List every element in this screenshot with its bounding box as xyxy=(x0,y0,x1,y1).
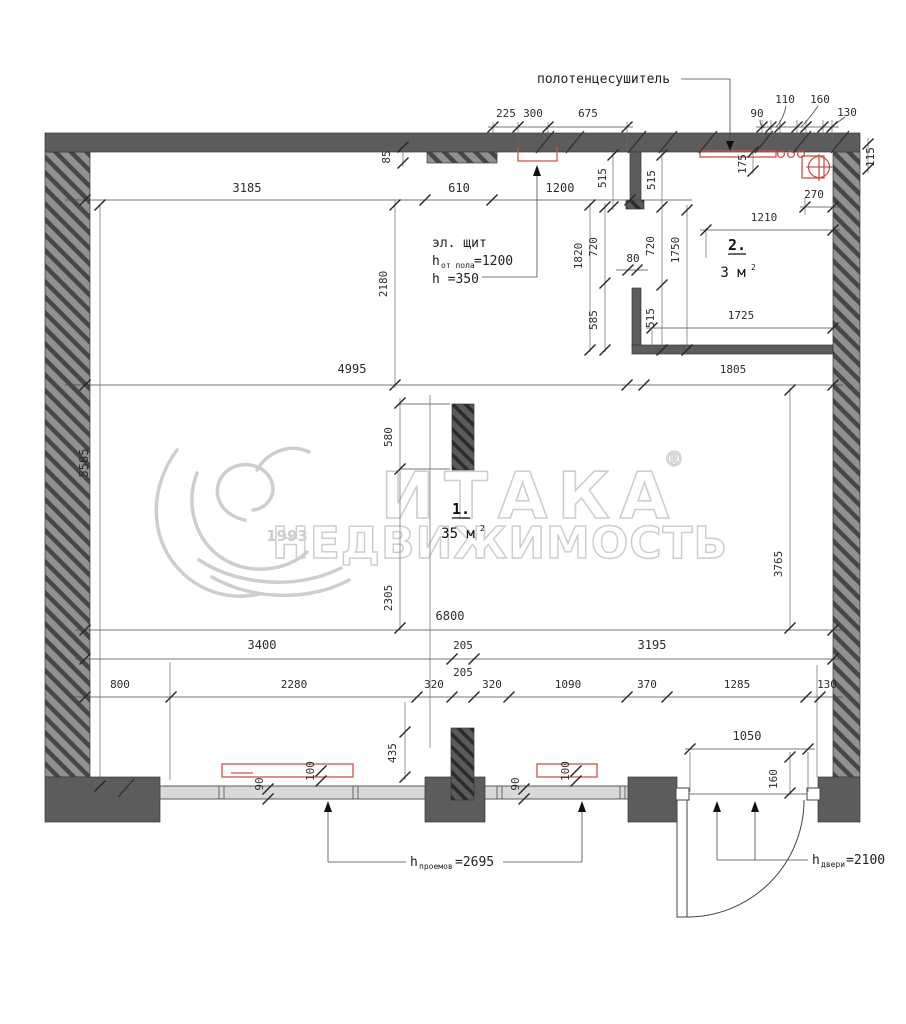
el-panel-title: эл. щит xyxy=(432,236,487,251)
dim-205b: 205 xyxy=(453,666,473,679)
door-jamb-right xyxy=(807,788,820,800)
dim-1285: 1285 xyxy=(724,678,751,691)
dim-3765: 3765 xyxy=(772,551,785,578)
dim-tr-130: 130 xyxy=(837,106,857,119)
column-upper xyxy=(452,404,474,470)
bottom-pier-door-left xyxy=(628,777,677,822)
dim-1090: 1090 xyxy=(555,678,582,691)
dim-720b: 720 xyxy=(644,236,657,256)
dim-175: 175 xyxy=(736,154,749,174)
dim-tr-110: 110 xyxy=(775,93,795,106)
room-1-number: 1. xyxy=(452,500,470,518)
dim-720a: 720 xyxy=(587,237,600,257)
door-height-value: =2100 xyxy=(846,853,885,868)
watermark-year: 1993 xyxy=(266,527,308,545)
towel-dryer-label: полотенцесушитель xyxy=(537,72,670,87)
dim-1725: 1725 xyxy=(728,309,755,322)
dim-160: 160 xyxy=(767,769,780,789)
dim-top-675: 675 xyxy=(578,107,598,120)
washbasin-icon xyxy=(802,154,833,181)
dim-rad2-100: 100 xyxy=(559,761,572,781)
window-2 xyxy=(485,786,628,799)
dim-1200: 1200 xyxy=(546,181,575,195)
door-arrow-2 xyxy=(751,801,759,812)
dim-585: 585 xyxy=(587,310,600,330)
dim-515c: 515 xyxy=(644,308,657,328)
dim-5585: 5585 xyxy=(77,449,91,478)
door-height-prefix: h xyxy=(812,853,820,868)
window-1-arrow xyxy=(324,801,332,812)
dim-2280: 2280 xyxy=(281,678,308,691)
columns xyxy=(451,404,474,800)
el-panel-h1-value: =1200 xyxy=(474,254,513,269)
dim-rad1-90: 90 xyxy=(253,777,266,790)
el-panel-h1-prefix: h xyxy=(432,254,440,269)
door-leaf xyxy=(677,800,687,917)
floor-plan-svg: ИТАКА ® НЕДВИЖИМОСТЬ 1993 xyxy=(0,0,906,1024)
dim-800: 800 xyxy=(110,678,130,691)
dim-435: 435 xyxy=(386,743,399,763)
dim-top-225: 225 xyxy=(496,107,516,120)
dim-1805: 1805 xyxy=(720,363,747,376)
top-wall xyxy=(45,133,860,152)
dim-6800: 6800 xyxy=(436,609,465,623)
door-height-sub: двери xyxy=(821,860,845,869)
right-wall xyxy=(833,152,860,777)
top-wall-pilaster xyxy=(427,152,497,163)
dim-rad2-90: 90 xyxy=(509,777,522,790)
dimension-labels: 225 300 675 90 110 160 130 115 3185 85 6… xyxy=(77,93,877,791)
dim-3185: 3185 xyxy=(233,181,262,195)
openings-height-prefix: h xyxy=(410,855,418,870)
dim-1750: 1750 xyxy=(669,237,682,264)
column-lower xyxy=(451,728,474,800)
room-2-area: 3 м xyxy=(720,265,746,281)
door-jamb-left xyxy=(676,788,689,800)
window-2-arrow xyxy=(578,801,586,812)
dim-2180: 2180 xyxy=(377,271,390,298)
dim-370: 370 xyxy=(637,678,657,691)
dim-top-300: 300 xyxy=(523,107,543,120)
dim-320a: 320 xyxy=(424,678,444,691)
dim-2305: 2305 xyxy=(382,585,395,612)
watermark-registered: ® xyxy=(664,447,684,471)
dim-3400: 3400 xyxy=(248,638,277,652)
dim-270: 270 xyxy=(804,188,824,201)
dim-580: 580 xyxy=(382,427,395,447)
dim-85: 85 xyxy=(380,150,393,163)
dim-1210: 1210 xyxy=(751,211,778,224)
dim-610: 610 xyxy=(448,181,470,195)
dim-tr-90: 90 xyxy=(750,107,763,120)
dim-515b: 515 xyxy=(645,170,658,190)
dim-80: 80 xyxy=(626,252,639,265)
room-2-number: 2. xyxy=(728,236,746,254)
bath-partition-vertical xyxy=(632,288,641,348)
openings-height-sub: проемов xyxy=(419,862,453,871)
openings-height-value: =2695 xyxy=(455,855,494,870)
door-arrow-1 xyxy=(713,801,721,812)
dim-4995: 4995 xyxy=(338,362,367,376)
dim-1820: 1820 xyxy=(572,243,585,270)
room-1-area: 35 м xyxy=(441,526,475,542)
dim-1050: 1050 xyxy=(733,729,762,743)
dim-320b: 320 xyxy=(482,678,502,691)
window-1 xyxy=(160,786,425,799)
room-2-area-sup: 2 xyxy=(751,263,756,272)
windows xyxy=(160,786,628,799)
dim-3195: 3195 xyxy=(638,638,667,652)
room-1-area-sup: 2 xyxy=(480,524,485,533)
dim-tr-160: 160 xyxy=(810,93,830,106)
dim-rad1-100: 100 xyxy=(304,761,317,781)
floor-plan-page: ИТАКА ® НЕДВИЖИМОСТЬ 1993 xyxy=(0,0,906,1024)
el-panel-h1-sub: от пола xyxy=(441,261,475,270)
dim-tr-115: 115 xyxy=(864,147,877,167)
dim-515a: 515 xyxy=(596,168,609,188)
el-panel-arrow xyxy=(533,165,541,176)
watermark-subtitle: НЕДВИЖИМОСТЬ xyxy=(272,518,728,569)
el-panel-h2: h =350 xyxy=(432,272,479,287)
entry-door xyxy=(676,788,820,917)
door-swing-arc xyxy=(687,800,804,917)
dim-130: 130 xyxy=(817,678,837,691)
radiator-1 xyxy=(222,764,353,777)
dim-205a: 205 xyxy=(453,639,473,652)
bottom-pier-door-right xyxy=(818,777,860,822)
